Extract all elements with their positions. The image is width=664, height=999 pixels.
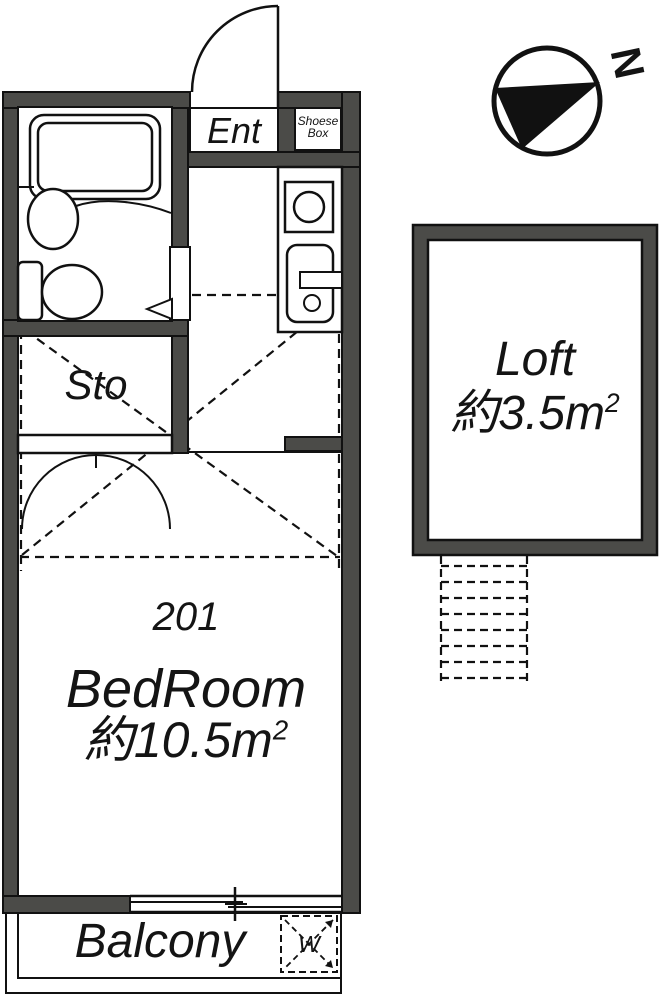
bedroom-area-label: 約10.5m2 — [46, 715, 326, 765]
drain-icon — [304, 295, 320, 311]
bathtub-inner — [38, 123, 152, 191]
bedroom-area-sup: 2 — [273, 714, 288, 745]
wall-right — [342, 92, 360, 913]
bedroom-label: BedRoom — [46, 662, 326, 716]
loft-area-value: 約3.5m — [450, 387, 605, 440]
shoes-box-line2: Box — [308, 126, 329, 140]
toilet-tank-icon — [18, 262, 42, 320]
loft-label: Loft — [435, 336, 635, 384]
compass-icon — [494, 48, 600, 154]
wall-storage-top — [3, 320, 188, 336]
entrance-label: Ent — [190, 113, 278, 149]
wall-storage-right — [172, 320, 188, 453]
wall-ent-divider — [278, 108, 295, 152]
entrance-door-arc — [192, 6, 278, 92]
wall-left — [3, 92, 18, 913]
wall-ent-bottom — [188, 152, 360, 167]
closet-door-arc-left — [22, 455, 96, 529]
loft-area-label: 約3.5m2 — [425, 390, 645, 438]
washbasin-icon — [28, 189, 78, 249]
balcony-label: Balcony — [52, 918, 268, 966]
burner-icon — [294, 192, 324, 222]
room-number: 201 — [116, 597, 256, 637]
closet-shelf — [18, 435, 172, 453]
kitchen-fixtures — [285, 182, 342, 322]
wall-stub — [285, 437, 342, 451]
ladder-icon — [441, 556, 527, 682]
wall-bottom — [3, 896, 130, 913]
toilet-bowl-icon — [42, 265, 102, 319]
bedroom-area-value: 約10.5m — [84, 712, 273, 768]
floor-plan-drawing — [0, 0, 664, 999]
washer-label: W — [294, 933, 324, 956]
entrance-opening — [191, 90, 277, 109]
wall-top-left — [3, 92, 190, 108]
shoes-box-label: Shoese Box — [295, 115, 341, 139]
faucet-icon — [300, 272, 342, 288]
floor-plan: Ent Shoese Box Sto 201 BedRoom 約10.5m2 L… — [0, 0, 664, 999]
closet-doors — [22, 453, 170, 529]
wall-bathroom — [172, 108, 188, 248]
storage-label: Sto — [40, 364, 152, 406]
loft-area-sup: 2 — [605, 388, 620, 418]
